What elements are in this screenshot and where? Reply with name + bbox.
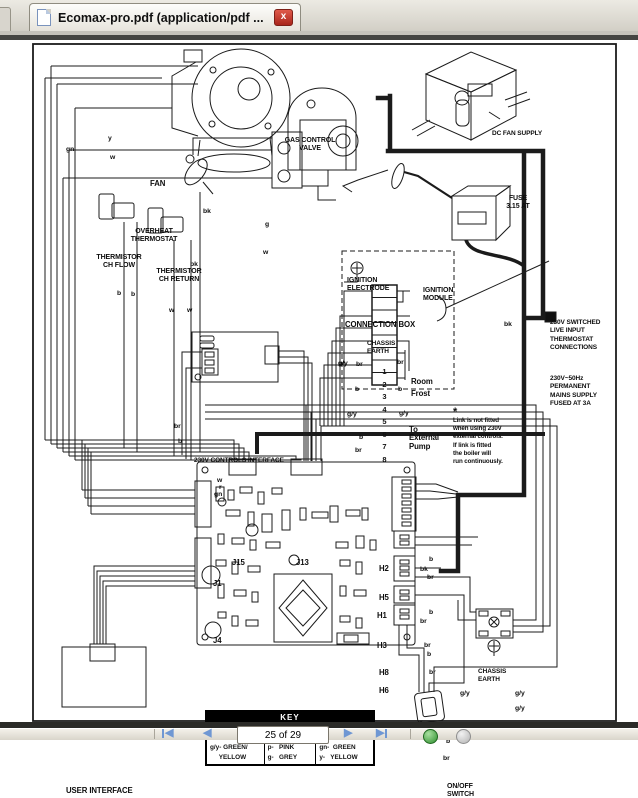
wire-label: bk xyxy=(420,566,428,573)
dc-fan-supply-label: DC FAN SUPPLY xyxy=(492,130,542,138)
toolbar-separator-2 xyxy=(410,729,411,739)
fuse-315-label: FUSE 3.15 AT xyxy=(498,195,538,210)
wire-label: g xyxy=(265,221,269,228)
terminal-4: 4 xyxy=(372,405,397,414)
wire-label: br xyxy=(443,755,450,762)
h1-label: H1 xyxy=(377,612,387,620)
wire-label: g/y xyxy=(347,411,357,418)
thermistor-ch-return-label: THERMISTOR CH RETURN xyxy=(144,268,214,283)
wire-label: br xyxy=(424,642,431,649)
link-note: Link is not fitted when using 230V exter… xyxy=(453,417,503,466)
next-page-icon: ▶ xyxy=(344,728,352,739)
external-pump-label: To External Pump xyxy=(409,426,439,451)
wire-label: y xyxy=(108,135,112,142)
wire-label: b xyxy=(429,609,433,616)
terminal-6: 6 xyxy=(372,430,397,439)
connection-box-label: CONNECTION BOX xyxy=(345,321,415,329)
wire-label: g/y xyxy=(399,410,409,417)
first-page-button[interactable]: ◀ xyxy=(162,728,173,739)
gas-valve-label: GAS CONTROL VALVE xyxy=(272,137,348,152)
wire-label: br xyxy=(356,361,363,368)
page-fold-icon xyxy=(46,9,51,14)
wire-label: br xyxy=(420,618,427,625)
j13-label: J13 xyxy=(296,559,309,567)
tab-close-icon[interactable]: x xyxy=(274,9,293,26)
wire-label: b xyxy=(427,651,431,658)
pdf-page: FAN GAS CONTROL VALVE DC FAN SUPPLY FUSE… xyxy=(0,40,638,722)
overheat-thermostat-label: OVERHEAT THERMOSTAT xyxy=(116,228,192,243)
page-number-input[interactable] xyxy=(237,726,329,744)
chassis-earth-bottom-drawing xyxy=(476,609,513,656)
next-page-button[interactable]: ▶ xyxy=(344,728,352,739)
wire-label: gn xyxy=(66,146,74,153)
mains-supply-note: 230V~50Hz PERMANENT MAINS SUPPLY FUSED A… xyxy=(550,375,597,408)
pdf-tab[interactable]: Ecomax-pro.pdf (application/pdf ... x xyxy=(29,3,301,31)
wire-label: g/y xyxy=(515,705,525,712)
wire-label: g/y xyxy=(460,690,470,697)
thin-wires xyxy=(45,66,557,692)
ignition-module-label: IGNITION MODULE xyxy=(423,287,453,302)
wire-label: gn xyxy=(214,491,222,498)
wire-label: b xyxy=(131,291,135,298)
j4-label: J4 xyxy=(213,637,221,645)
ignition-electrode-label: IGNITION ELECTRODE xyxy=(347,277,389,292)
terminal-1: 1 xyxy=(372,367,397,376)
wire-label: br xyxy=(427,574,434,581)
ignition-electrode-drawing xyxy=(343,162,452,198)
wire-label: w xyxy=(110,154,115,161)
wire-label: b xyxy=(359,434,363,441)
user-interface-label: USER INTERFACE xyxy=(66,787,133,795)
fan-label: FAN xyxy=(150,180,165,188)
wire-label: br xyxy=(397,359,404,366)
thermistor-ch-flow-label: THERMISTOR CH FLOW xyxy=(84,254,154,269)
chassis-earth-top-label: CHASSIS EARTH xyxy=(367,340,395,357)
wire-label: br xyxy=(429,669,436,676)
terminal-2: 2 xyxy=(372,380,397,389)
wire-label: bk xyxy=(190,261,198,268)
wire-label: b xyxy=(398,386,402,393)
on-off-switch-label: ON/OFF SWITCH xyxy=(447,783,474,798)
overheat-thermostat-drawing xyxy=(180,155,213,194)
dc-fan-supply-drawing xyxy=(412,52,530,140)
first-page-icon xyxy=(162,729,164,738)
previous-page-button[interactable]: ◀ xyxy=(203,728,211,739)
zoom-out-icon[interactable] xyxy=(456,729,471,744)
j1-label: J1 xyxy=(213,580,221,588)
switched-live-note: 230V SWITCHED LIVE INPUT THERMOSTAT CONN… xyxy=(550,319,600,352)
last-page-icon xyxy=(385,729,387,738)
wire-label: w xyxy=(217,477,222,484)
wire-label: w xyxy=(169,307,174,314)
wire-label: g/y xyxy=(515,690,525,697)
wire-label: bk xyxy=(203,208,211,215)
h6-label: H6 xyxy=(379,687,389,695)
wire-label: br xyxy=(174,423,181,430)
wire-label: b xyxy=(178,438,182,445)
last-page-arrow-icon: ▶ xyxy=(376,728,384,739)
h8-label: H8 xyxy=(379,669,389,677)
controls-interface-label: 230V CONTROLS INTERFACE xyxy=(194,457,284,465)
wire-label: w xyxy=(187,307,192,314)
terminal-3: 3 xyxy=(372,392,397,401)
wire-label: b xyxy=(355,386,359,393)
on-off-switch-drawing xyxy=(414,690,445,722)
last-page-button[interactable]: ▶ xyxy=(376,728,387,739)
user-interface-drawing xyxy=(62,644,146,707)
chassis-earth-bottom-label: CHASSIS EARTH xyxy=(478,668,506,685)
h2-label: H2 xyxy=(379,565,389,573)
h3-label: H3 xyxy=(377,642,387,650)
zoom-in-icon[interactable] xyxy=(423,729,438,744)
wire-label: r xyxy=(219,484,222,491)
first-page-arrow-icon: ◀ xyxy=(165,728,173,739)
pdf-document-icon xyxy=(37,9,51,26)
screenshot-root: { "tab": { "title": "Ecomax-pro.pdf (app… xyxy=(0,0,638,739)
previous-page-icon: ◀ xyxy=(203,728,211,739)
wire-label: b xyxy=(117,290,121,297)
h5-label: H5 xyxy=(379,594,389,602)
wire-label: bk xyxy=(504,321,512,328)
wire-label: w xyxy=(263,249,268,256)
toolbar-separator xyxy=(154,729,155,739)
tab-strip-stub[interactable] xyxy=(0,7,11,32)
wire-label: br xyxy=(355,447,362,454)
room-label: Room xyxy=(411,378,433,386)
j15-label: J15 xyxy=(232,559,245,567)
controls-interface-drawing xyxy=(192,332,279,382)
terminal-8: 8 xyxy=(372,455,397,464)
tab-title: Ecomax-pro.pdf (application/pdf ... xyxy=(58,11,264,25)
frost-label: Frost xyxy=(411,390,430,398)
terminal-7: 7 xyxy=(372,442,397,451)
wire-label: b xyxy=(429,556,433,563)
terminal-5: 5 xyxy=(372,417,397,426)
browser-tab-bar: Ecomax-pro.pdf (application/pdf ... x xyxy=(0,0,638,32)
wire-label: g/y xyxy=(338,360,348,367)
